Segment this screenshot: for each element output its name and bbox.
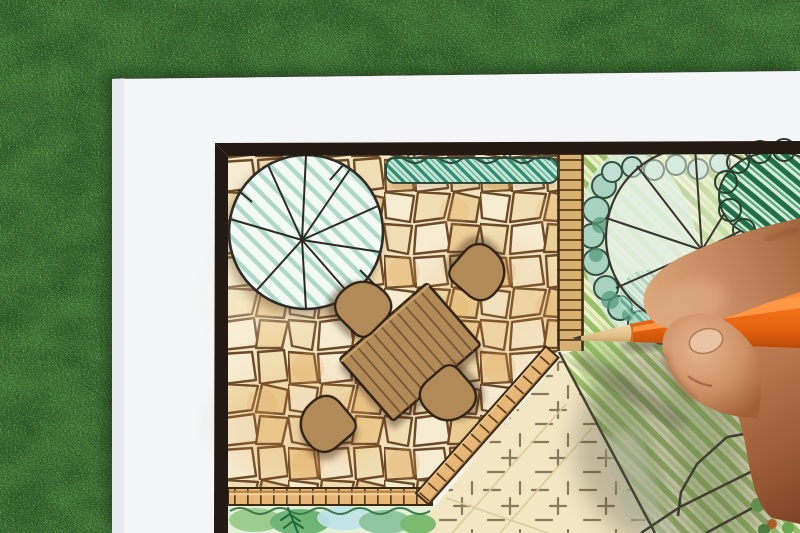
timber-walkway <box>557 152 584 351</box>
garden-plan-photo <box>0 0 800 533</box>
hedge-shadow <box>390 184 556 188</box>
paper-edge-shade <box>112 78 124 533</box>
hedge-row <box>386 157 558 188</box>
planting-bed <box>228 506 436 533</box>
photo-scene <box>0 0 800 533</box>
brick-edging-horizontal <box>228 488 432 505</box>
